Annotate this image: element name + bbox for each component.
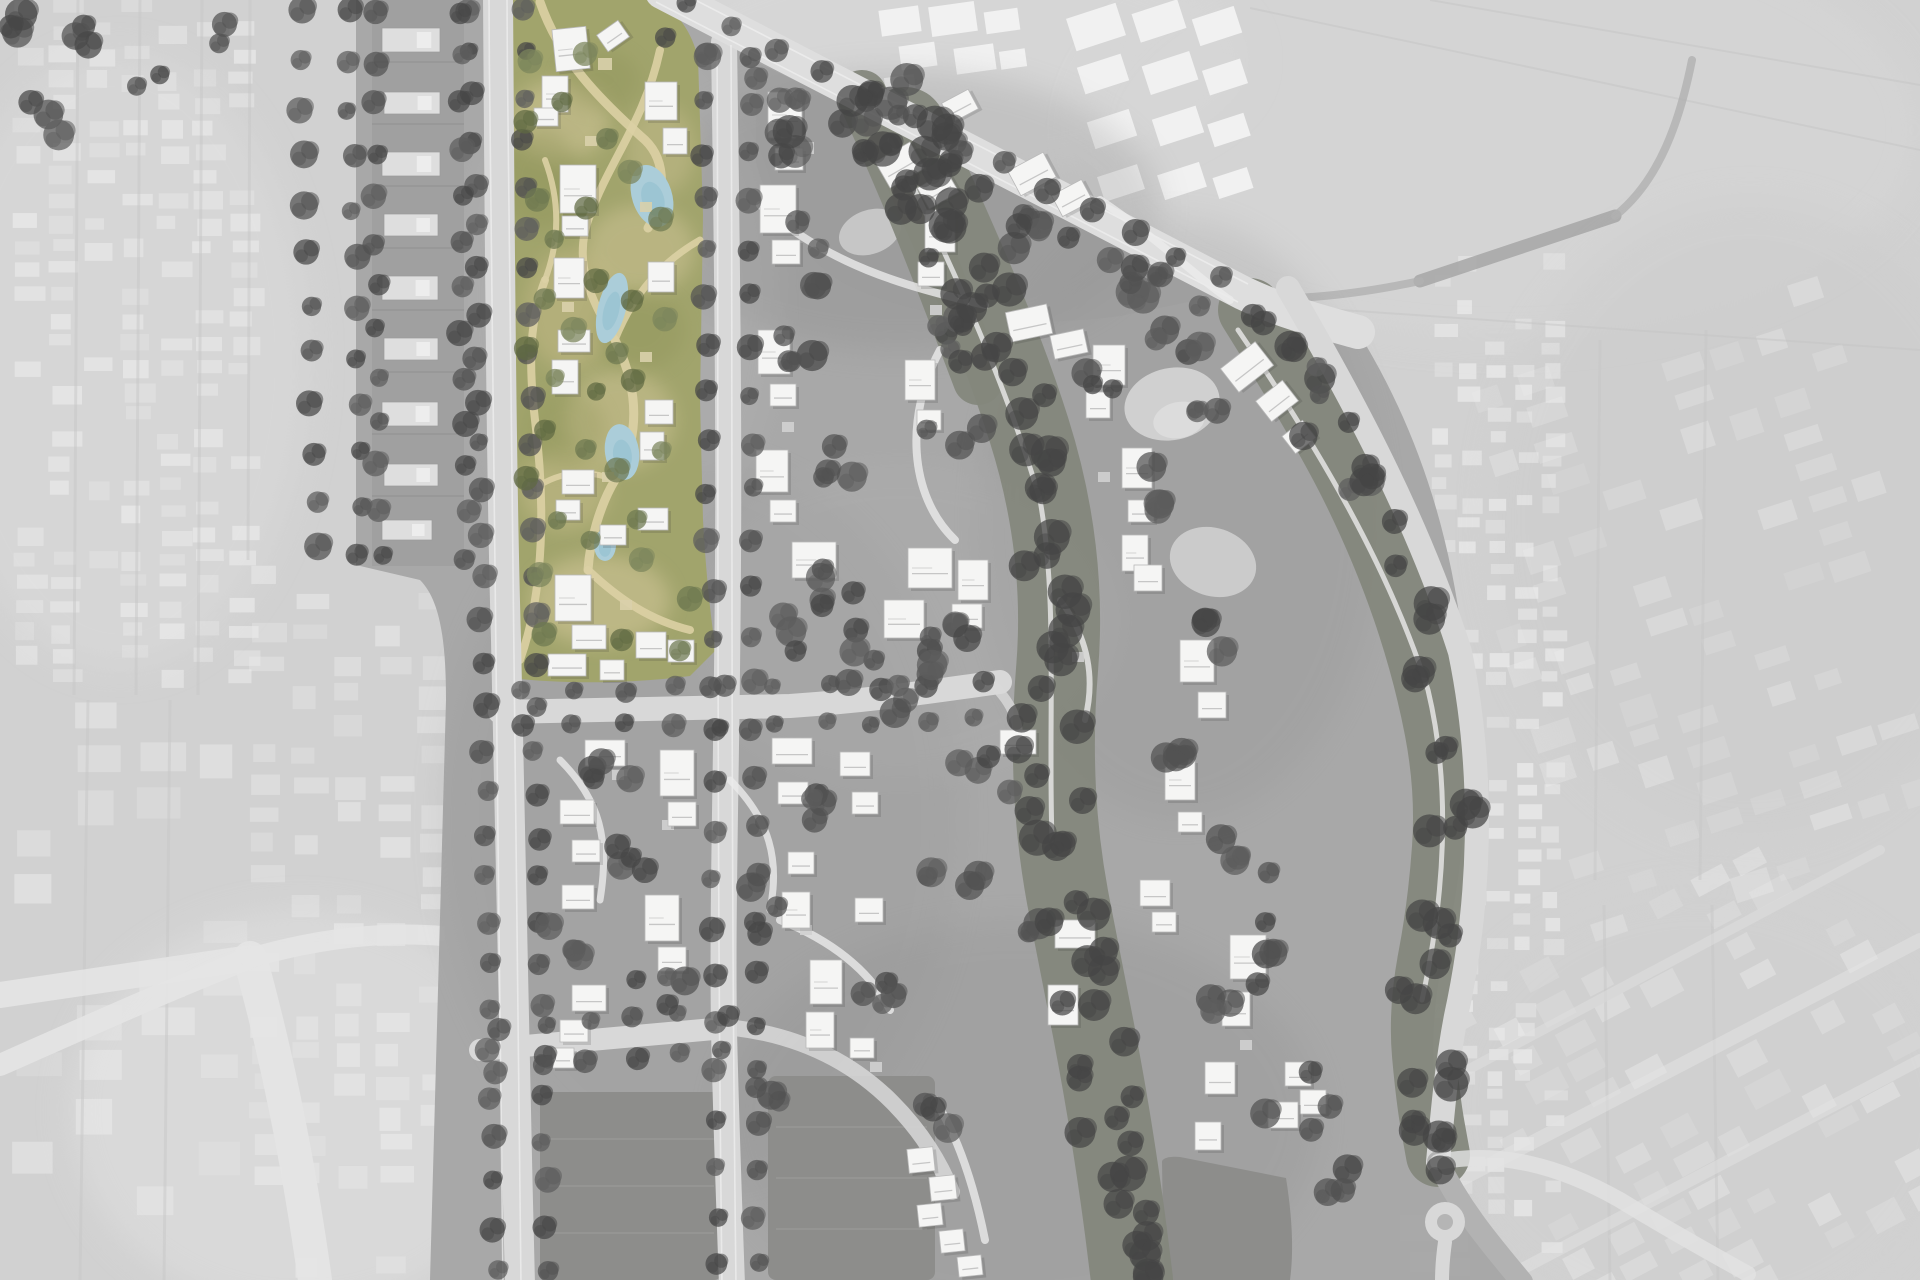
building xyxy=(908,548,955,591)
building xyxy=(939,1228,968,1256)
building xyxy=(645,82,680,123)
building xyxy=(1140,880,1173,909)
road xyxy=(724,42,732,1280)
building xyxy=(770,384,799,409)
building xyxy=(562,885,597,912)
building xyxy=(554,258,587,301)
building xyxy=(636,632,669,661)
building xyxy=(663,128,690,157)
building xyxy=(600,660,627,683)
building xyxy=(1205,1062,1238,1097)
building xyxy=(645,400,676,427)
building xyxy=(560,800,597,827)
building xyxy=(770,500,799,525)
building xyxy=(907,1146,939,1176)
building xyxy=(810,960,845,1007)
building xyxy=(600,525,629,548)
building xyxy=(782,892,813,931)
building xyxy=(555,575,594,624)
building xyxy=(572,625,609,652)
building xyxy=(929,1174,961,1204)
masterplan-canvas xyxy=(0,0,1920,1280)
building xyxy=(1178,812,1205,835)
building xyxy=(957,1254,986,1280)
building xyxy=(562,470,597,497)
site-plan-image xyxy=(0,0,1920,1280)
building xyxy=(648,262,677,295)
building xyxy=(660,750,697,799)
building xyxy=(905,360,938,403)
building xyxy=(852,792,881,817)
building xyxy=(772,240,803,267)
road xyxy=(1442,1242,1445,1280)
building xyxy=(958,560,991,603)
building xyxy=(1195,1122,1224,1153)
building xyxy=(548,654,589,679)
building xyxy=(806,1012,837,1051)
building xyxy=(645,895,682,944)
building xyxy=(572,840,603,865)
building xyxy=(917,1202,946,1230)
building xyxy=(855,898,886,925)
building xyxy=(788,852,817,877)
building xyxy=(850,1038,877,1061)
building xyxy=(1198,692,1229,721)
building xyxy=(572,985,609,1014)
building xyxy=(840,752,873,779)
building xyxy=(668,802,699,829)
building xyxy=(1134,565,1165,594)
building xyxy=(772,738,815,767)
building xyxy=(1152,912,1179,935)
